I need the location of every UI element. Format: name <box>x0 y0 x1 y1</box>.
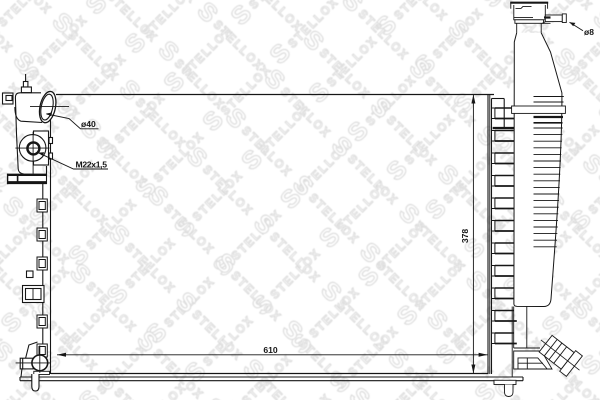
svg-text:ø40: ø40 <box>81 119 96 129</box>
svg-text:610: 610 <box>263 345 278 355</box>
svg-text:378: 378 <box>460 229 470 244</box>
svg-text:M22x1,5: M22x1,5 <box>76 160 108 170</box>
svg-text:ø8: ø8 <box>584 27 594 37</box>
